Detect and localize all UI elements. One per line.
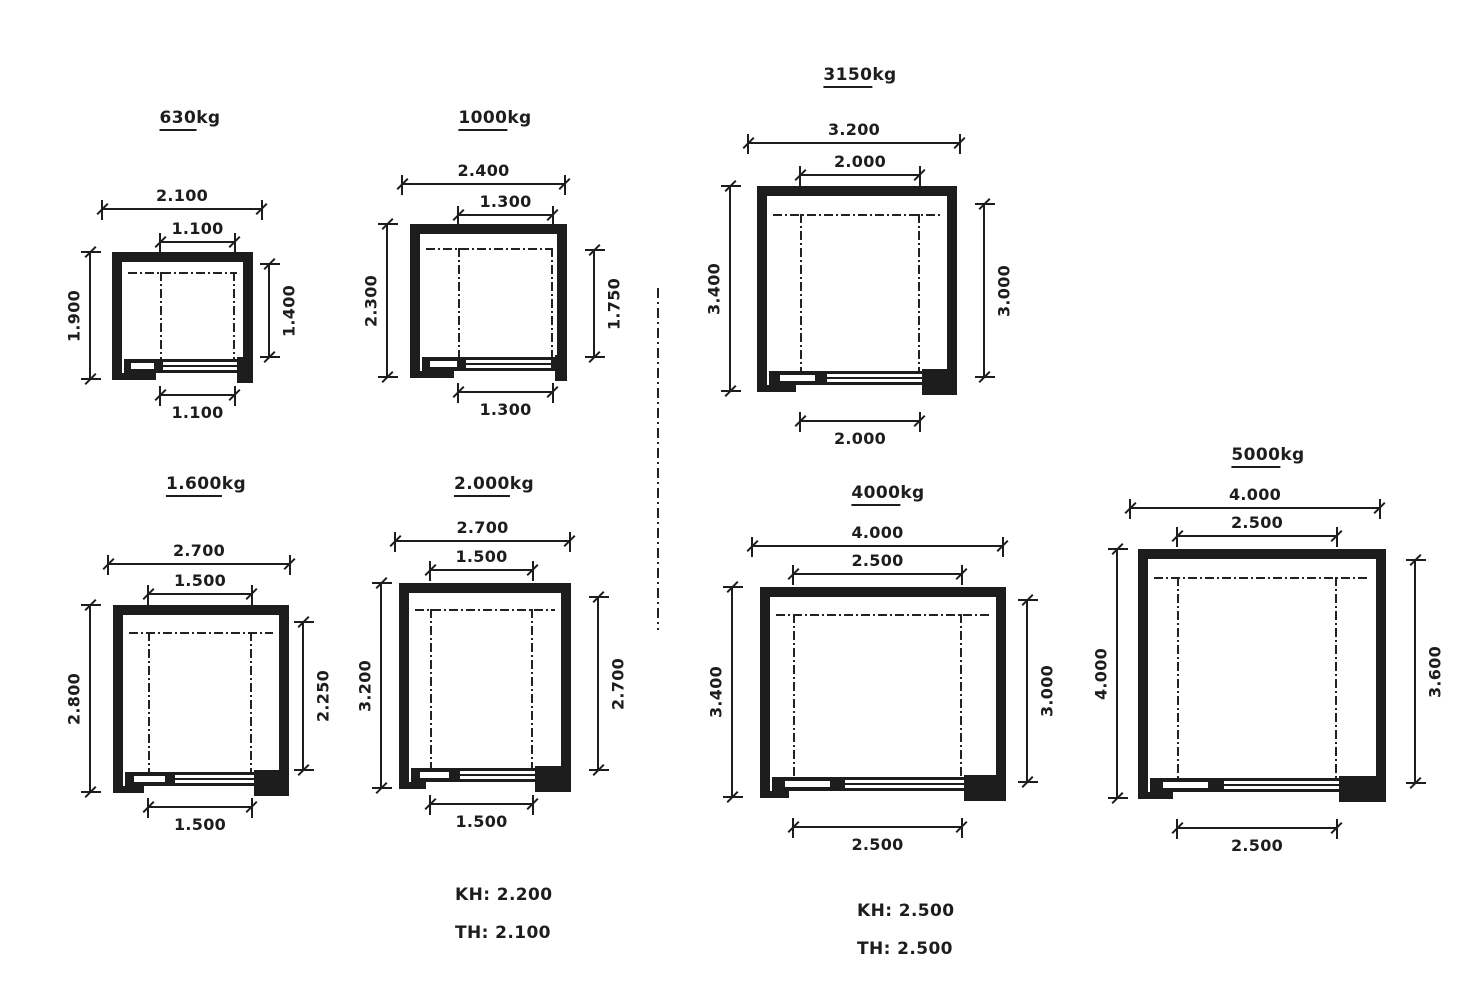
wall-stub-right — [964, 775, 1006, 801]
dim-tick — [1124, 502, 1136, 514]
capacity-value: 630 — [160, 108, 197, 131]
capacity-value: 4000 — [851, 483, 900, 506]
dim-extension-line — [159, 386, 161, 406]
door-sill — [125, 772, 277, 786]
capacity-value: 1000 — [458, 108, 507, 131]
dim-tick — [1409, 777, 1421, 789]
car-centerline-right — [551, 248, 553, 357]
dim-extension-line — [961, 818, 963, 838]
dim-car-width: 2.500 — [793, 573, 962, 575]
dim-tick — [724, 180, 736, 192]
shaft-plan — [112, 252, 253, 379]
dim-tick — [526, 798, 538, 810]
dim-extension-line — [961, 565, 963, 585]
dim-tick — [297, 764, 309, 776]
dim-tick — [381, 371, 393, 383]
dim-tick — [787, 821, 799, 833]
dimension-label: 3.600 — [1426, 645, 1445, 697]
dim-extension-line — [1002, 537, 1004, 557]
dim-car-width: 1.300 — [458, 214, 553, 216]
dimension-label: 2.100 — [156, 186, 208, 205]
dim-extension-line — [81, 791, 101, 793]
dim-tick — [452, 386, 464, 398]
dim-extension-line — [959, 134, 961, 154]
dim-tick — [142, 801, 154, 813]
dim-shaft-depth: 2.800 — [89, 605, 91, 792]
dim-tick — [592, 764, 604, 776]
dim-shaft-depth: 2.300 — [386, 224, 388, 377]
sill-track — [175, 780, 272, 783]
shaft-plan — [1138, 549, 1386, 798]
capacity-value: 5000 — [1231, 445, 1280, 468]
dim-extension-line — [1336, 527, 1338, 547]
dim-shaft-width: 3.200 — [748, 142, 960, 144]
dim-tick — [228, 389, 240, 401]
dim-shaft-width: 2.700 — [108, 563, 290, 565]
dim-tick — [1409, 554, 1421, 566]
car-centerline-right — [960, 614, 962, 777]
dim-extension-line — [1108, 797, 1128, 799]
door-sill — [422, 357, 555, 371]
car-centerline-horizontal — [129, 632, 273, 634]
dim-tick — [1330, 822, 1342, 834]
dimension-label: 2.500 — [851, 551, 903, 570]
sill-slot — [430, 361, 457, 367]
sill-track — [827, 374, 940, 377]
capacity-title: 4000kg — [851, 483, 924, 503]
dimension-label: 1.300 — [479, 192, 531, 211]
dim-tick — [228, 236, 240, 248]
dim-shaft-depth: 1.900 — [89, 252, 91, 379]
dim-extension-line — [799, 412, 801, 432]
dim-car-width: 2.500 — [1177, 535, 1337, 537]
dim-tick — [84, 786, 96, 798]
dimension-label: 3.200 — [828, 120, 880, 139]
wall-stub-right — [535, 766, 571, 792]
dim-car-depth: 3.600 — [1414, 560, 1416, 783]
car-centerline-horizontal — [1154, 577, 1370, 579]
dim-extension-line — [585, 249, 605, 251]
dimension-label: 3.200 — [356, 659, 375, 711]
dim-tick — [1111, 543, 1123, 555]
dim-car-width: 1.500 — [148, 593, 252, 595]
dim-extension-line — [81, 251, 101, 253]
dim-car-depth: 2.250 — [302, 622, 304, 770]
car-centerline-right — [233, 272, 235, 359]
dim-car-depth: 1.750 — [593, 250, 595, 357]
dim-tick — [1021, 594, 1033, 606]
wall-stub-right — [555, 355, 567, 381]
dim-extension-line — [552, 206, 554, 226]
dimension-label: 1.750 — [605, 277, 624, 329]
dim-extension-line — [792, 818, 794, 838]
dimension-label: 1.900 — [65, 289, 84, 341]
dim-tick — [742, 137, 754, 149]
capacity-unit: kg — [507, 108, 531, 128]
dim-extension-line — [552, 383, 554, 403]
sill-track — [163, 362, 238, 365]
dim-shaft-depth: 3.200 — [380, 583, 382, 788]
dimension-label: 1.300 — [479, 400, 531, 419]
dim-car-depth: 3.000 — [983, 204, 985, 377]
dim-extension-line — [1129, 499, 1131, 519]
dim-extension-line — [1108, 548, 1128, 550]
sill-track — [466, 360, 551, 363]
note-th: TH: 2.500 — [857, 939, 955, 959]
dimension-label: 3.000 — [995, 264, 1014, 316]
dimension-label: 2.500 — [1231, 836, 1283, 855]
dim-car-depth: 3.000 — [1026, 600, 1028, 782]
dim-tick — [787, 568, 799, 580]
wall-stub-left — [399, 782, 426, 789]
shaft-plan — [757, 186, 957, 391]
dim-extension-line — [1406, 782, 1426, 784]
note-kh: KH: 2.500 — [857, 901, 955, 921]
dim-tick — [396, 178, 408, 190]
capacity-title: 630kg — [160, 108, 221, 128]
dim-extension-line — [751, 537, 753, 557]
dimension-label: 1.400 — [280, 284, 299, 336]
dimension-label: 1.500 — [455, 812, 507, 831]
dim-tick — [558, 178, 570, 190]
car-centerline-horizontal — [415, 609, 555, 611]
dim-extension-line — [81, 604, 101, 606]
car-centerline-right — [1335, 577, 1337, 778]
dimension-label: 2.000 — [834, 152, 886, 171]
dimension-label: 2.700 — [456, 518, 508, 537]
dim-extension-line — [429, 795, 431, 815]
dim-tick — [1330, 530, 1342, 542]
dimension-label: 4.000 — [1092, 647, 1111, 699]
car-centerline-right — [531, 609, 533, 768]
dim-tick — [263, 351, 275, 363]
dim-extension-line — [919, 412, 921, 432]
car-centerline-left — [793, 614, 795, 777]
dim-car-depth: 1.400 — [268, 264, 270, 357]
dim-extension-line — [457, 206, 459, 226]
dimension-label: 4.000 — [1229, 485, 1281, 504]
dimension-label: 2.400 — [457, 161, 509, 180]
dim-door-width: 2.500 — [1177, 827, 1337, 829]
car-centerline-horizontal — [776, 614, 990, 616]
dimension-label: 2.000 — [834, 429, 886, 448]
dimension-label: 1.500 — [174, 815, 226, 834]
car-centerline-left — [148, 632, 150, 772]
dim-shaft-width: 4.000 — [752, 545, 1003, 547]
dim-tick — [913, 415, 925, 427]
door-sill — [411, 768, 559, 782]
dim-extension-line — [251, 798, 253, 818]
dim-extension-line — [532, 795, 534, 815]
dim-tick — [588, 244, 600, 256]
car-centerline-left — [430, 609, 432, 768]
wall-stub-left — [112, 373, 156, 380]
sill-track — [460, 771, 555, 774]
sill-track — [845, 785, 987, 788]
dim-extension-line — [289, 555, 291, 575]
dim-extension-line — [1018, 781, 1038, 783]
dim-extension-line — [1379, 499, 1381, 519]
dim-tick — [452, 209, 464, 221]
dim-extension-line — [723, 796, 743, 798]
dim-extension-line — [585, 356, 605, 358]
dimension-label: 2.300 — [362, 274, 381, 326]
dim-tick — [84, 246, 96, 258]
note-group-large-lifts: KH: 2.500 TH: 2.500 — [857, 901, 955, 977]
diagram-630kg: 630kg2.1001.1001.9001.4001.100 — [0, 0, 1469, 998]
dim-door-width: 1.500 — [148, 806, 252, 808]
capacity-title: 1000kg — [458, 108, 531, 128]
dim-shaft-width: 2.700 — [395, 540, 570, 542]
dim-tick — [996, 540, 1008, 552]
dim-tick — [955, 821, 967, 833]
sill-track — [1224, 786, 1367, 789]
dim-tick — [1171, 822, 1183, 834]
dim-tick — [297, 616, 309, 628]
diagram-4000kg: 4000kg4.0002.5003.4003.0002.500 — [0, 0, 1469, 998]
capacity-value: 1.600 — [166, 474, 222, 497]
dim-extension-line — [569, 532, 571, 552]
car-centerline-horizontal — [426, 248, 551, 250]
dim-shaft-width: 2.100 — [102, 208, 262, 210]
diagram-1600kg: 1.600kg2.7001.5002.8002.2501.500 — [0, 0, 1469, 998]
car-centerline-left — [800, 214, 802, 371]
dim-extension-line — [261, 200, 263, 220]
wall-stub-left — [410, 371, 454, 378]
capacity-unit: kg — [510, 474, 534, 494]
capacity-unit: kg — [222, 474, 246, 494]
dim-tick — [245, 801, 257, 813]
dim-extension-line — [589, 596, 609, 598]
dim-tick — [375, 577, 387, 589]
capacity-value: 2.000 — [454, 474, 510, 497]
sill-track — [845, 780, 987, 783]
sill-slot — [1163, 782, 1208, 788]
car-centerline-left — [160, 272, 162, 359]
dim-shaft-width: 4.000 — [1130, 507, 1380, 509]
dim-tick — [84, 599, 96, 611]
dim-tick — [794, 415, 806, 427]
dim-door-width: 1.100 — [160, 394, 235, 396]
capacity-title: 1.600kg — [166, 474, 246, 494]
car-centerline-right — [250, 632, 252, 772]
car-centerline-left — [458, 248, 460, 357]
capacity-unit: kg — [900, 483, 924, 503]
diagram-1000kg: 1000kg2.4001.3002.3001.7501.300 — [0, 0, 1469, 998]
sill-track — [175, 775, 272, 778]
capacity-title: 3150kg — [823, 65, 896, 85]
dim-extension-line — [107, 555, 109, 575]
shaft-plan — [760, 587, 1006, 797]
car-centerline-horizontal — [128, 272, 237, 274]
dim-door-width: 1.500 — [430, 803, 533, 805]
dim-tick — [424, 798, 436, 810]
dimension-label: 2.500 — [1231, 513, 1283, 532]
sill-slot — [420, 772, 450, 778]
dim-extension-line — [81, 378, 101, 380]
dimension-label: 1.100 — [171, 403, 223, 422]
dim-tick — [245, 588, 257, 600]
dim-extension-line — [260, 356, 280, 358]
dimension-label: 3.400 — [707, 666, 726, 718]
dimension-label: 3.400 — [705, 262, 724, 314]
dim-shaft-depth: 4.000 — [1116, 549, 1118, 798]
separator-centerline — [657, 288, 659, 630]
sill-track — [460, 776, 555, 779]
dim-extension-line — [532, 561, 534, 581]
dim-extension-line — [975, 203, 995, 205]
note-group-small-lifts: KH: 2.200 TH: 2.100 — [455, 885, 553, 961]
dimension-label: 2.700 — [173, 541, 225, 560]
door-sill — [769, 371, 945, 385]
dim-tick — [1111, 792, 1123, 804]
dim-extension-line — [294, 769, 314, 771]
capacity-title: 2.000kg — [454, 474, 534, 494]
dimension-label: 1.100 — [171, 219, 223, 238]
dim-extension-line — [792, 565, 794, 585]
dim-tick — [1021, 776, 1033, 788]
dim-tick — [746, 540, 758, 552]
dim-extension-line — [294, 621, 314, 623]
dim-extension-line — [975, 376, 995, 378]
dim-extension-line — [159, 233, 161, 253]
dim-extension-line — [147, 585, 149, 605]
dim-tick — [375, 782, 387, 794]
dim-tick — [953, 137, 965, 149]
dimension-label: 1.500 — [174, 571, 226, 590]
shaft-plan — [113, 605, 289, 792]
dim-extension-line — [429, 561, 431, 581]
dim-extension-line — [147, 798, 149, 818]
capacity-title: 5000kg — [1231, 445, 1304, 465]
dim-tick — [255, 203, 267, 215]
dim-extension-line — [799, 166, 801, 186]
dim-tick — [154, 236, 166, 248]
dim-tick — [794, 169, 806, 181]
dim-extension-line — [378, 376, 398, 378]
sill-track — [1224, 781, 1367, 784]
dim-extension-line — [564, 175, 566, 195]
dim-tick — [955, 568, 967, 580]
dim-shaft-depth: 3.400 — [731, 587, 733, 797]
dim-extension-line — [234, 233, 236, 253]
diagram-2000kg: 2.000kg2.7001.5003.2002.7001.500 — [0, 0, 1469, 998]
dimension-label: 2.700 — [609, 657, 628, 709]
dim-extension-line — [372, 582, 392, 584]
dim-tick — [283, 558, 295, 570]
dim-car-width: 2.000 — [800, 174, 920, 176]
dim-tick — [102, 558, 114, 570]
wall-stub-right — [1339, 776, 1386, 802]
dim-extension-line — [721, 390, 741, 392]
dim-car-width: 1.100 — [160, 241, 235, 243]
car-centerline-horizontal — [773, 214, 941, 216]
dim-extension-line — [747, 134, 749, 154]
sill-slot — [134, 776, 164, 782]
dim-tick — [546, 209, 558, 221]
wall-stub-left — [757, 385, 796, 392]
wall-stub-left — [1138, 792, 1173, 799]
dim-extension-line — [457, 383, 459, 403]
capacity-value: 3150 — [823, 65, 872, 88]
sill-track — [466, 365, 551, 368]
dim-extension-line — [401, 175, 403, 195]
dim-extension-line — [1018, 599, 1038, 601]
dim-tick — [588, 351, 600, 363]
dim-tick — [1373, 502, 1385, 514]
sill-track — [827, 379, 940, 382]
car-centerline-right — [918, 214, 920, 371]
dimension-label: 4.000 — [851, 523, 903, 542]
dim-tick — [913, 169, 925, 181]
dim-extension-line — [721, 185, 741, 187]
dim-tick — [978, 198, 990, 210]
dim-extension-line — [589, 769, 609, 771]
dim-extension-line — [378, 223, 398, 225]
dim-tick — [96, 203, 108, 215]
wall-stub-left — [113, 786, 144, 793]
car-centerline-left — [1177, 577, 1179, 778]
dim-shaft-depth: 3.400 — [729, 186, 731, 391]
capacity-unit: kg — [872, 65, 896, 85]
dim-tick — [424, 564, 436, 576]
dim-tick — [978, 371, 990, 383]
dim-extension-line — [260, 263, 280, 265]
dim-tick — [84, 373, 96, 385]
door-sill — [124, 359, 241, 373]
dim-extension-line — [1176, 819, 1178, 839]
dim-extension-line — [919, 166, 921, 186]
dim-extension-line — [394, 532, 396, 552]
dim-extension-line — [1336, 819, 1338, 839]
dim-tick — [1171, 530, 1183, 542]
dimension-label: 1.500 — [455, 547, 507, 566]
dim-tick — [563, 535, 575, 547]
dim-extension-line — [101, 200, 103, 220]
drawing-canvas: 630kg2.1001.1001.9001.4001.1001000kg2.40… — [0, 0, 1469, 998]
sill-slot — [785, 781, 829, 787]
door-sill — [1150, 778, 1374, 792]
capacity-unit: kg — [1280, 445, 1304, 465]
wall-stub-left — [760, 791, 789, 798]
diagram-5000kg: 5000kg4.0002.5004.0003.6002.500 — [0, 0, 1469, 998]
dimension-label: 2.500 — [851, 835, 903, 854]
dim-door-width: 2.500 — [793, 826, 962, 828]
dim-tick — [263, 258, 275, 270]
shaft-plan — [399, 583, 571, 788]
dim-tick — [389, 535, 401, 547]
dim-tick — [546, 386, 558, 398]
dim-tick — [726, 581, 738, 593]
note-kh: KH: 2.200 — [455, 885, 553, 905]
dim-extension-line — [1176, 527, 1178, 547]
wall-stub-right — [922, 369, 957, 395]
dim-tick — [724, 385, 736, 397]
dim-door-width: 2.000 — [800, 420, 920, 422]
dim-tick — [526, 564, 538, 576]
dim-car-width: 1.500 — [430, 569, 533, 571]
sill-track — [163, 367, 238, 370]
dim-tick — [726, 791, 738, 803]
dim-tick — [142, 588, 154, 600]
dim-car-depth: 2.700 — [597, 597, 599, 770]
wall-stub-right — [237, 357, 253, 383]
dim-extension-line — [251, 585, 253, 605]
sill-slot — [131, 363, 154, 369]
door-sill — [772, 777, 994, 791]
dim-extension-line — [372, 787, 392, 789]
dim-extension-line — [234, 386, 236, 406]
